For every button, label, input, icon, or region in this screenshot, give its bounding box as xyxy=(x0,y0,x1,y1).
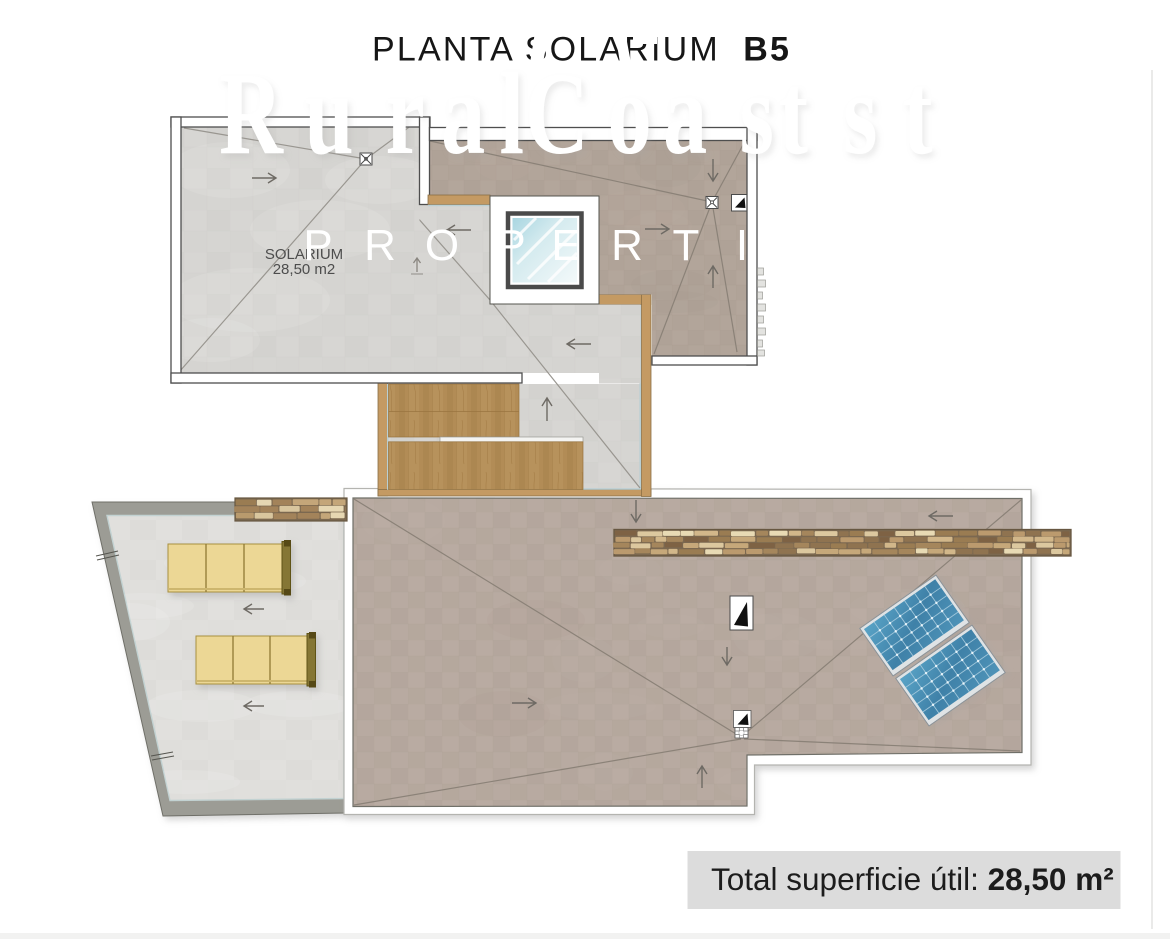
svg-text:S: S xyxy=(843,221,872,270)
svg-text:Total superficie útil: 28,50 m: Total superficie útil: 28,50 m² xyxy=(711,861,1114,897)
svg-text:R: R xyxy=(611,221,643,270)
svg-text:PLANTA SOLARIUM B5: PLANTA SOLARIUM B5 xyxy=(372,31,791,69)
svg-text:R: R xyxy=(364,221,396,270)
svg-text:E: E xyxy=(785,221,814,270)
svg-text:P: P xyxy=(496,221,525,270)
svg-text:E: E xyxy=(551,221,580,270)
svg-text:T: T xyxy=(673,221,700,270)
svg-text:O: O xyxy=(425,221,459,270)
svg-text:P: P xyxy=(303,221,332,270)
svg-text:I: I xyxy=(736,221,748,270)
